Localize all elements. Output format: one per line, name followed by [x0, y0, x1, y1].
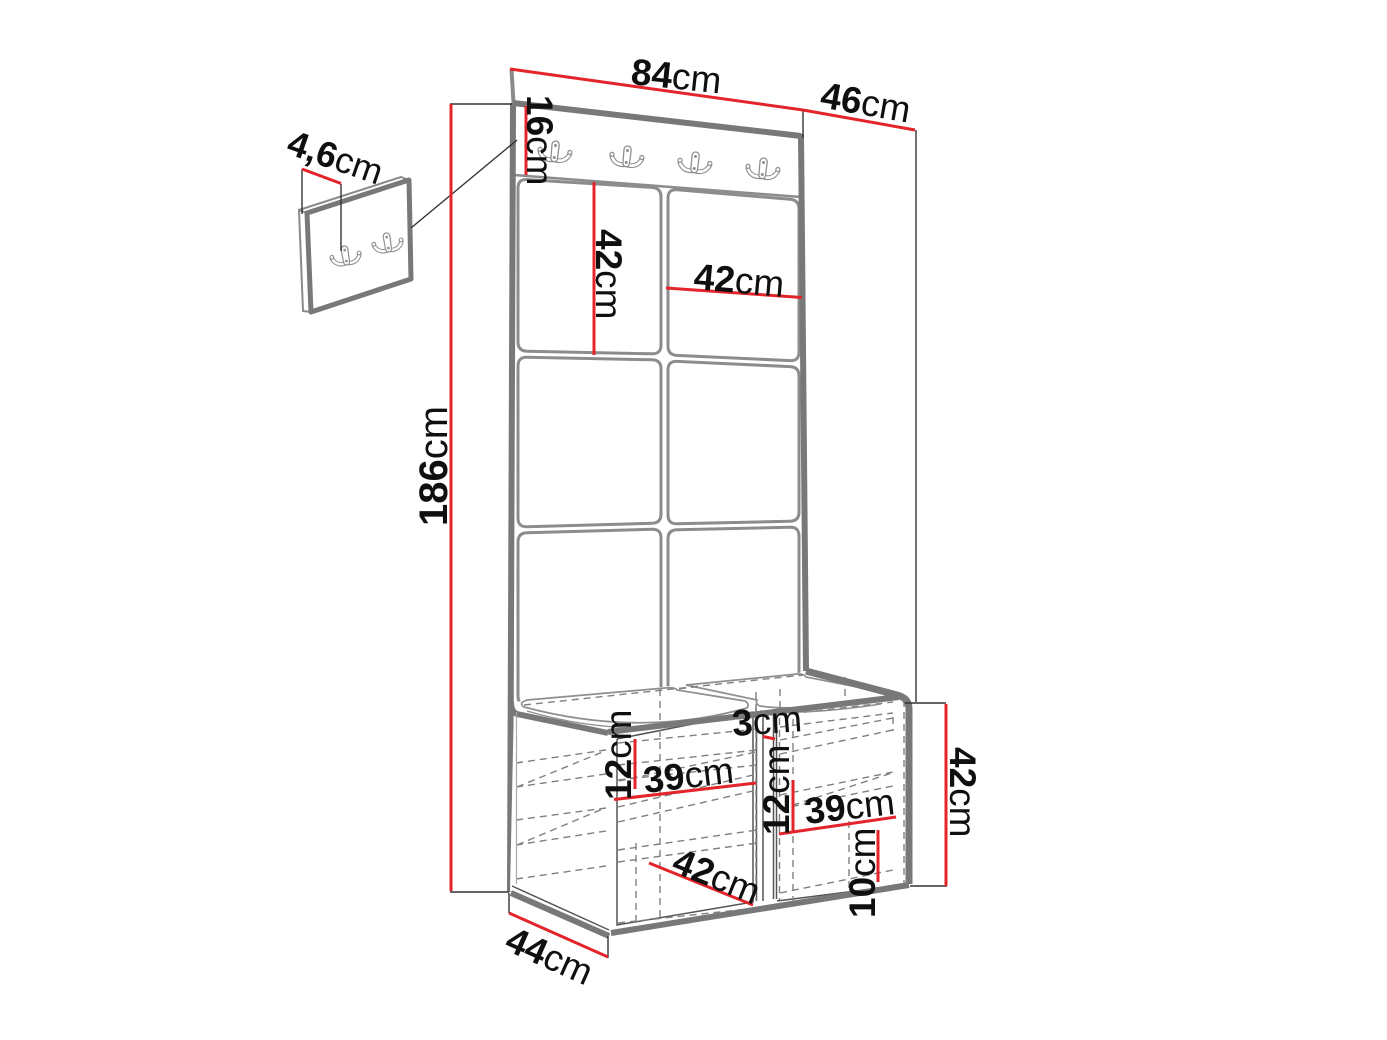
svg-text:16cm: 16cm — [519, 95, 560, 185]
svg-text:12cm: 12cm — [598, 710, 639, 800]
svg-text:186cm: 186cm — [412, 406, 456, 526]
svg-text:42cm: 42cm — [692, 256, 786, 305]
svg-text:10cm: 10cm — [842, 828, 883, 918]
svg-text:42cm: 42cm — [942, 747, 983, 837]
svg-text:3cm: 3cm — [731, 698, 804, 744]
svg-text:42cm: 42cm — [588, 229, 629, 319]
svg-text:12cm: 12cm — [756, 745, 797, 835]
